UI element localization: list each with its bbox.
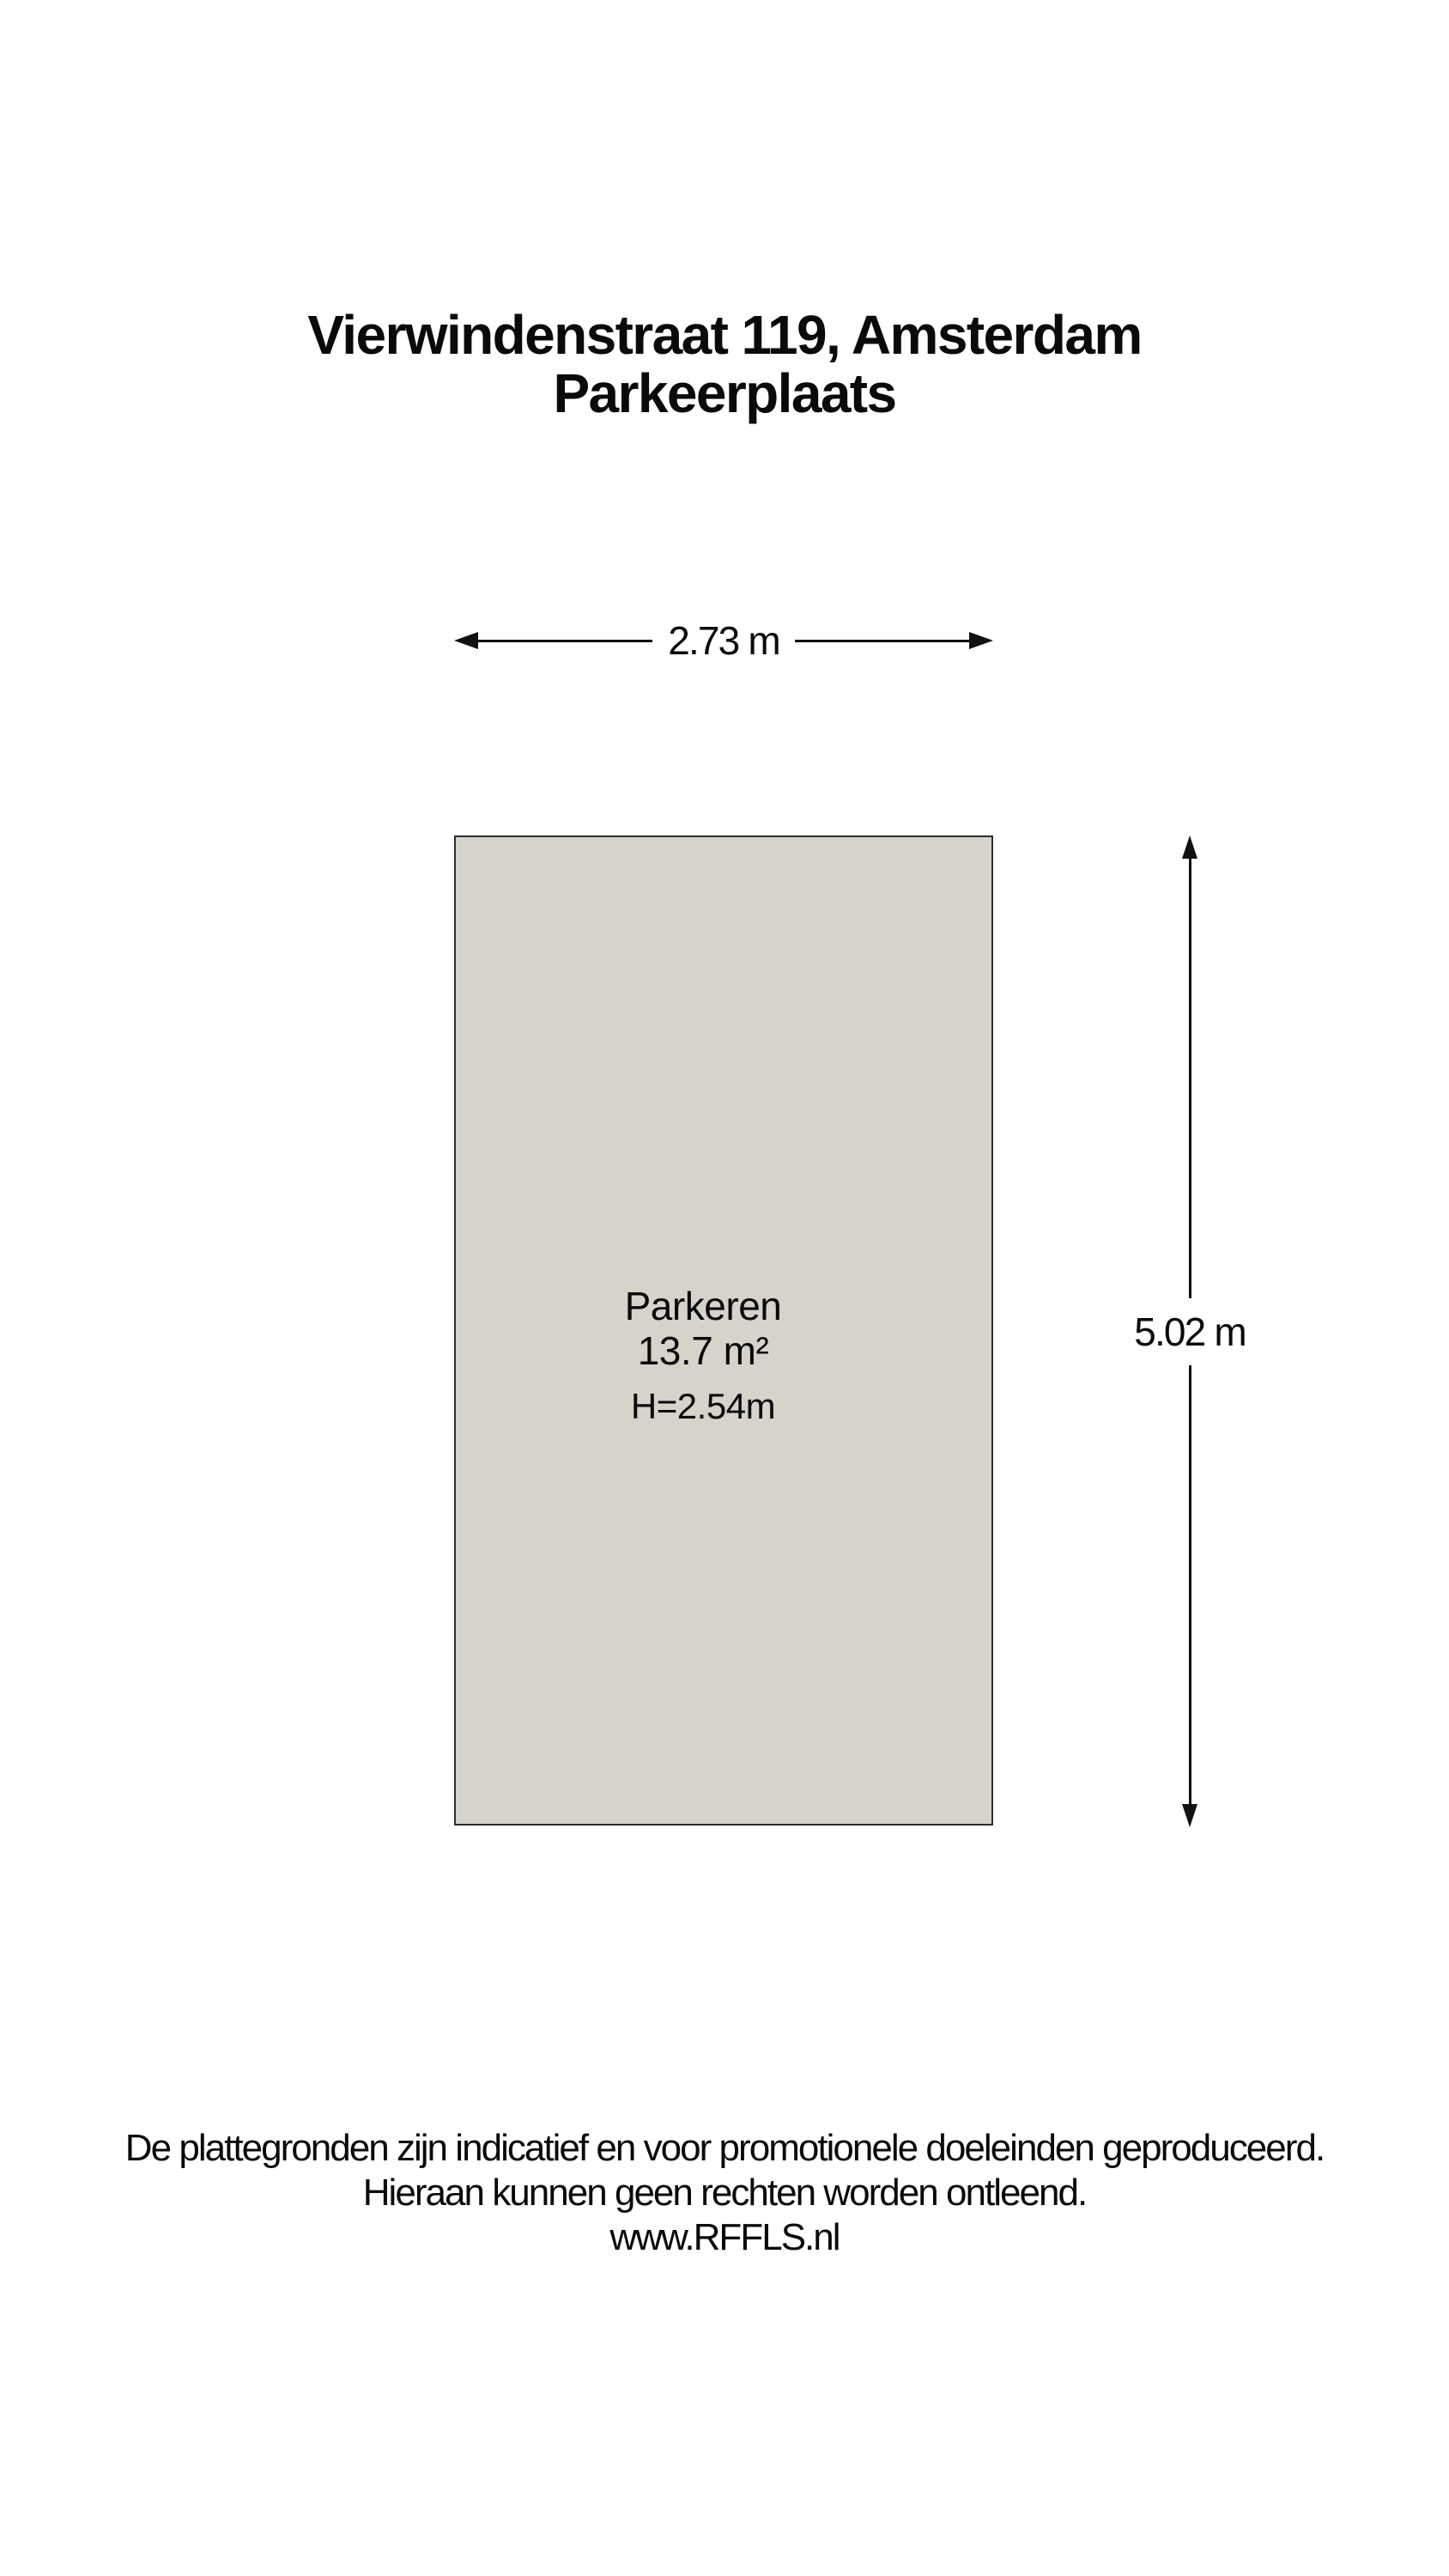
room-ceiling-height: H=2.54m <box>625 1387 782 1426</box>
disclaimer-line-1: De plattegronden zijn indicatief en voor… <box>0 2126 1449 2171</box>
height-dimension: 5.02 m <box>1121 835 1258 1827</box>
height-dimension-line-top <box>1189 859 1191 1298</box>
width-dimension: 2.73 m <box>454 605 993 677</box>
page-title: Vierwindenstraat 119, Amsterdam Parkeerp… <box>0 306 1449 422</box>
arrowhead-down-icon <box>1182 1804 1197 1827</box>
room-parkeren: Parkeren 13.7 m² H=2.54m <box>454 835 993 1826</box>
floorplan-page: Vierwindenstraat 119, Amsterdam Parkeerp… <box>0 0 1449 2576</box>
width-dimension-line-right <box>795 640 969 642</box>
arrowhead-left-icon <box>454 632 478 649</box>
height-dimension-label: 5.02 m <box>1134 1298 1246 1365</box>
room-label: Parkeren 13.7 m² H=2.54m <box>625 1284 782 1426</box>
room-area: 13.7 m² <box>625 1328 782 1373</box>
height-dimension-line-bottom <box>1189 1365 1191 1805</box>
address-title: Vierwindenstraat 119, Amsterdam <box>0 306 1449 364</box>
arrowhead-right-icon <box>969 632 993 649</box>
disclaimer-website: www.RFFLS.nl <box>0 2215 1449 2260</box>
width-dimension-line-left <box>478 640 652 642</box>
disclaimer-line-2: Hieraan kunnen geen rechten worden ontle… <box>0 2171 1449 2215</box>
arrowhead-up-icon <box>1182 835 1197 859</box>
plan-type-title: Parkeerplaats <box>0 364 1449 422</box>
disclaimer: De plattegronden zijn indicatief en voor… <box>0 2126 1449 2260</box>
width-dimension-label: 2.73 m <box>652 617 795 664</box>
room-name: Parkeren <box>625 1284 782 1328</box>
